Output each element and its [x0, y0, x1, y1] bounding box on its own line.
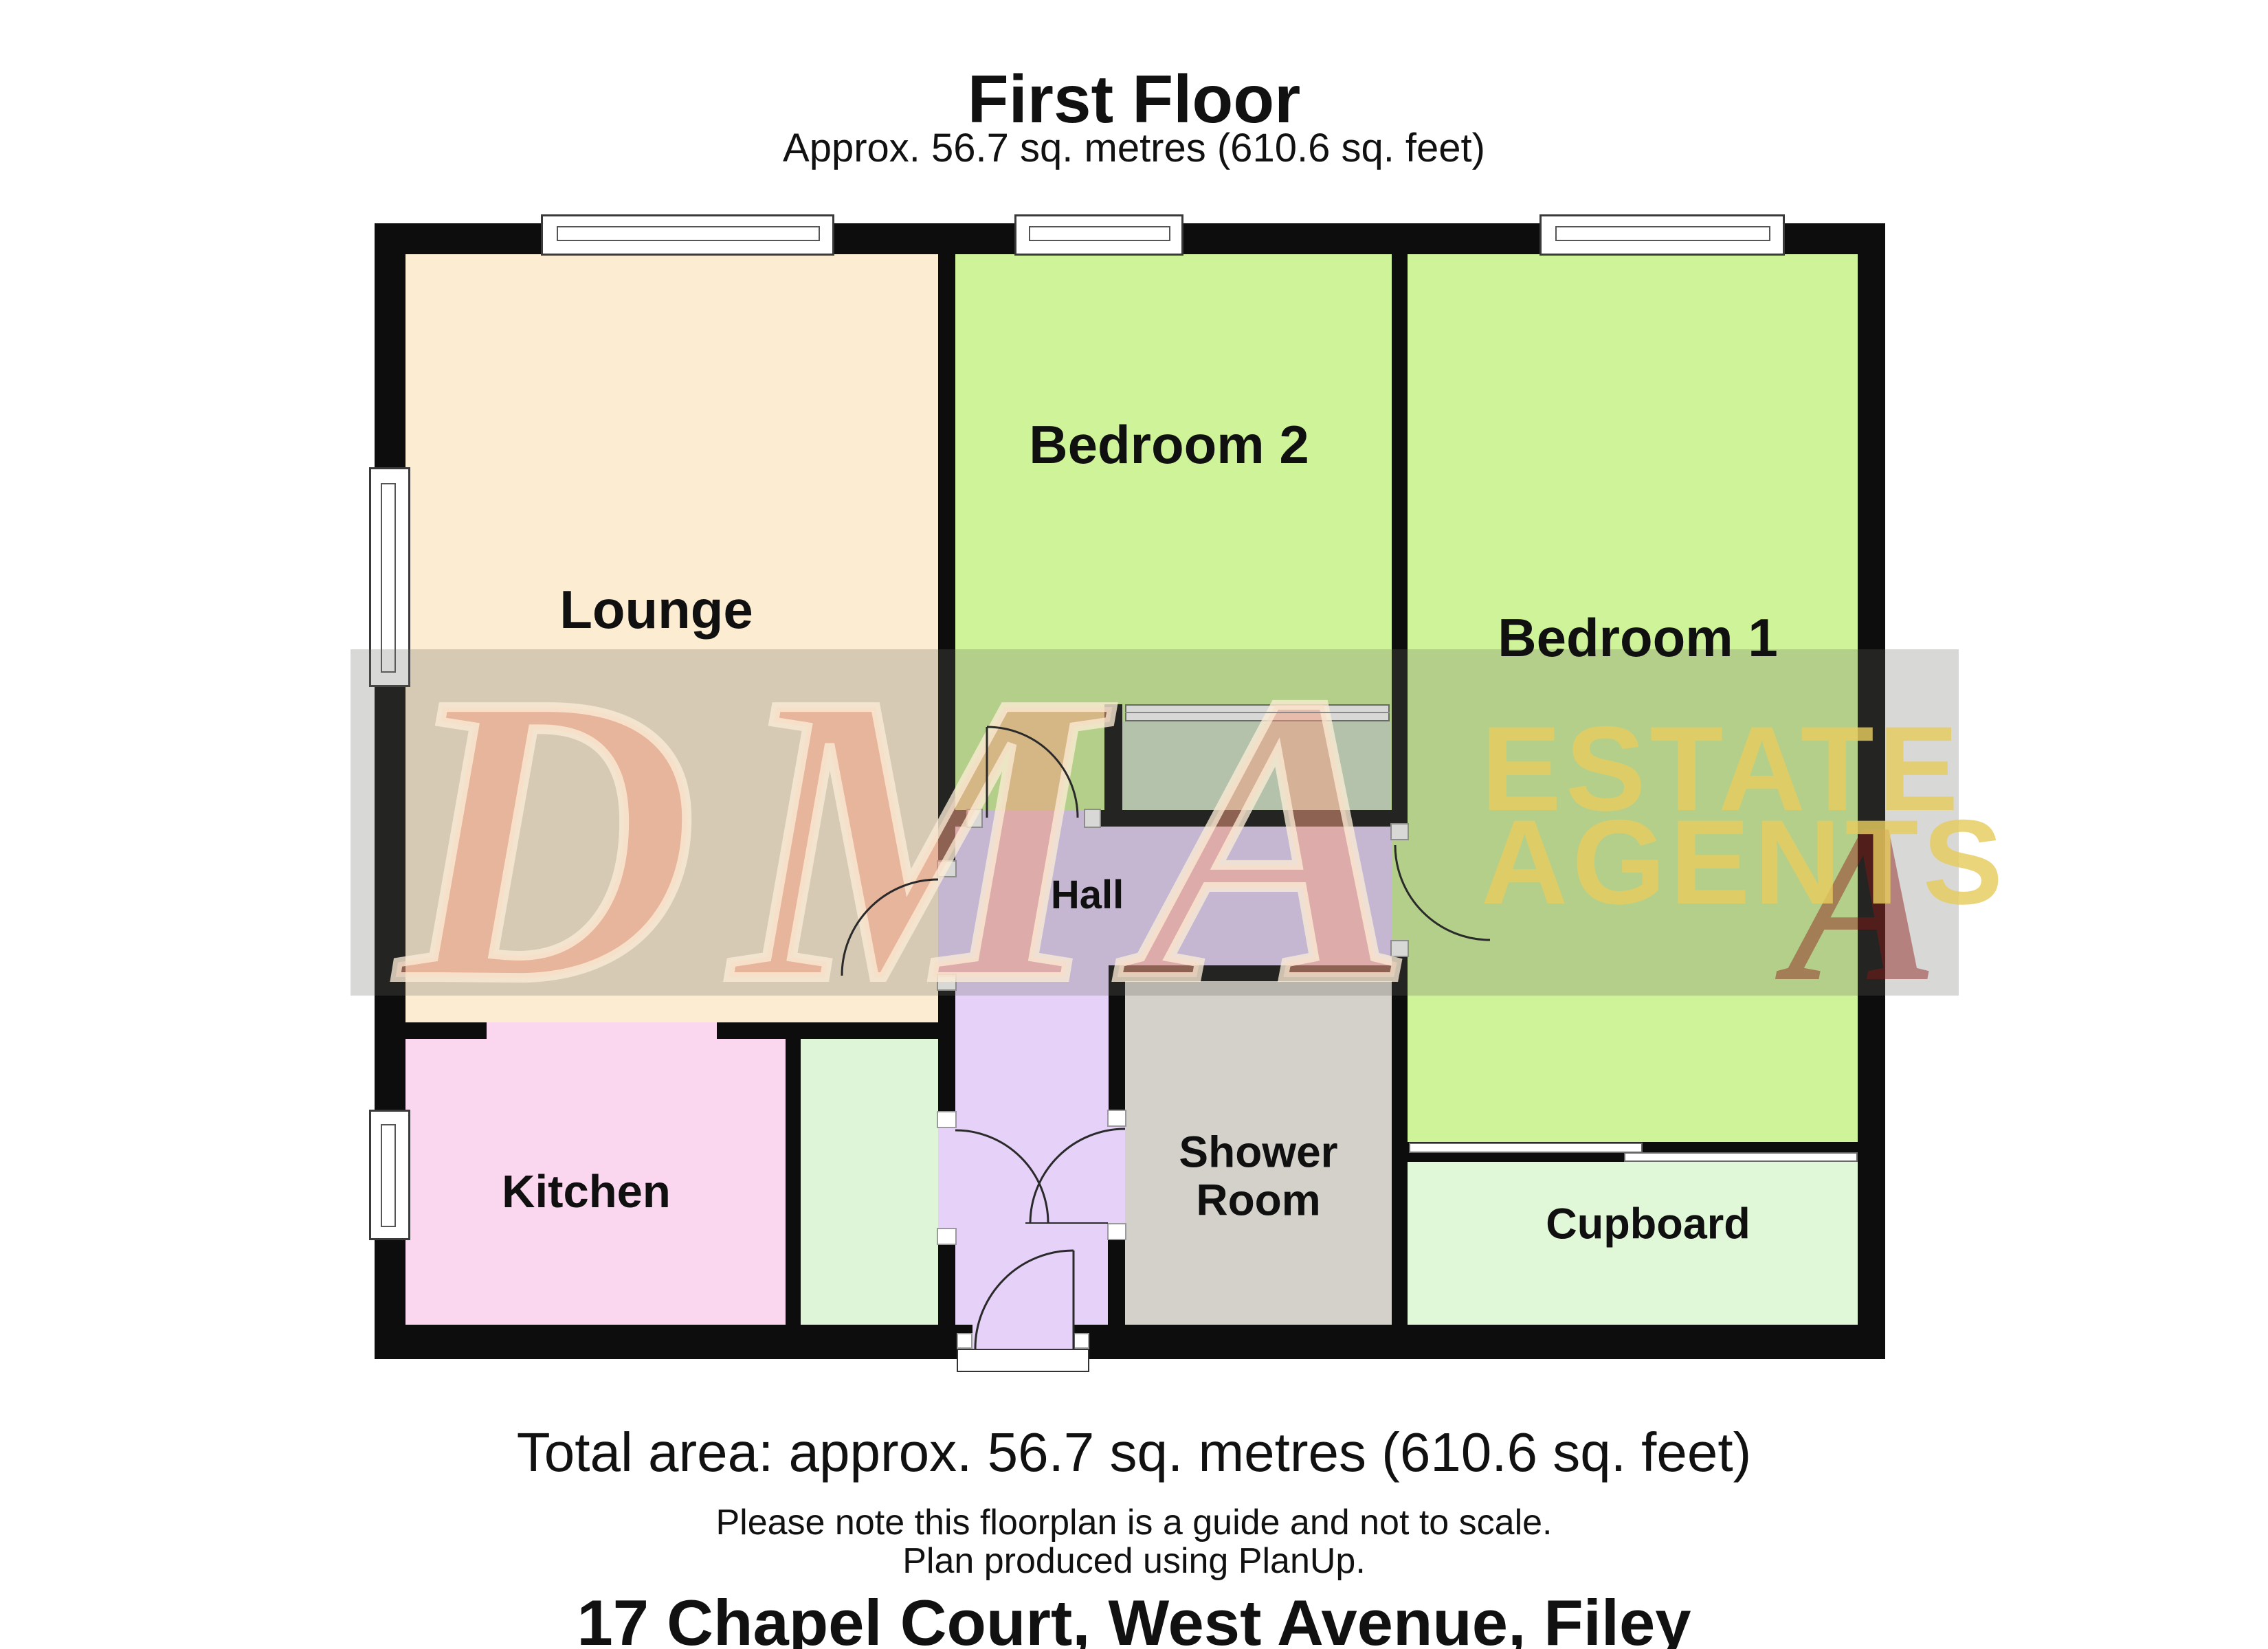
door-arcs [0, 0, 2268, 1649]
total-area-text: Total area: approx. 56.7 sq. metres (610… [0, 1421, 2268, 1484]
address-text: 17 Chapel Court, West Avenue, Filey [0, 1586, 2268, 1649]
label-cupboard: Cupboard [1546, 1200, 1750, 1248]
label-lounge: Lounge [559, 581, 753, 640]
producer-text: Plan produced using PlanUp. [0, 1540, 2268, 1582]
door-arc-strip [955, 1130, 1048, 1223]
label-kitchen: Kitchen [502, 1167, 671, 1218]
door-arc-bedroom1 [1395, 845, 1490, 940]
label-bedroom1: Bedroom 1 [1498, 609, 1777, 668]
door-arc-bedroom2 [987, 727, 1078, 818]
door-arc-front [975, 1250, 1074, 1349]
door-arc-lounge [842, 879, 938, 976]
label-shower-room: Shower Room [1162, 1128, 1355, 1225]
disclaimer-text: Please note this floorplan is a guide an… [0, 1502, 2268, 1543]
label-hall: Hall [1051, 873, 1124, 917]
door-arc-shower [1030, 1129, 1125, 1224]
label-bedroom2: Bedroom 2 [1029, 416, 1309, 475]
floorplan-page: First Floor Approx. 56.7 sq. metres (610… [0, 0, 2268, 1649]
